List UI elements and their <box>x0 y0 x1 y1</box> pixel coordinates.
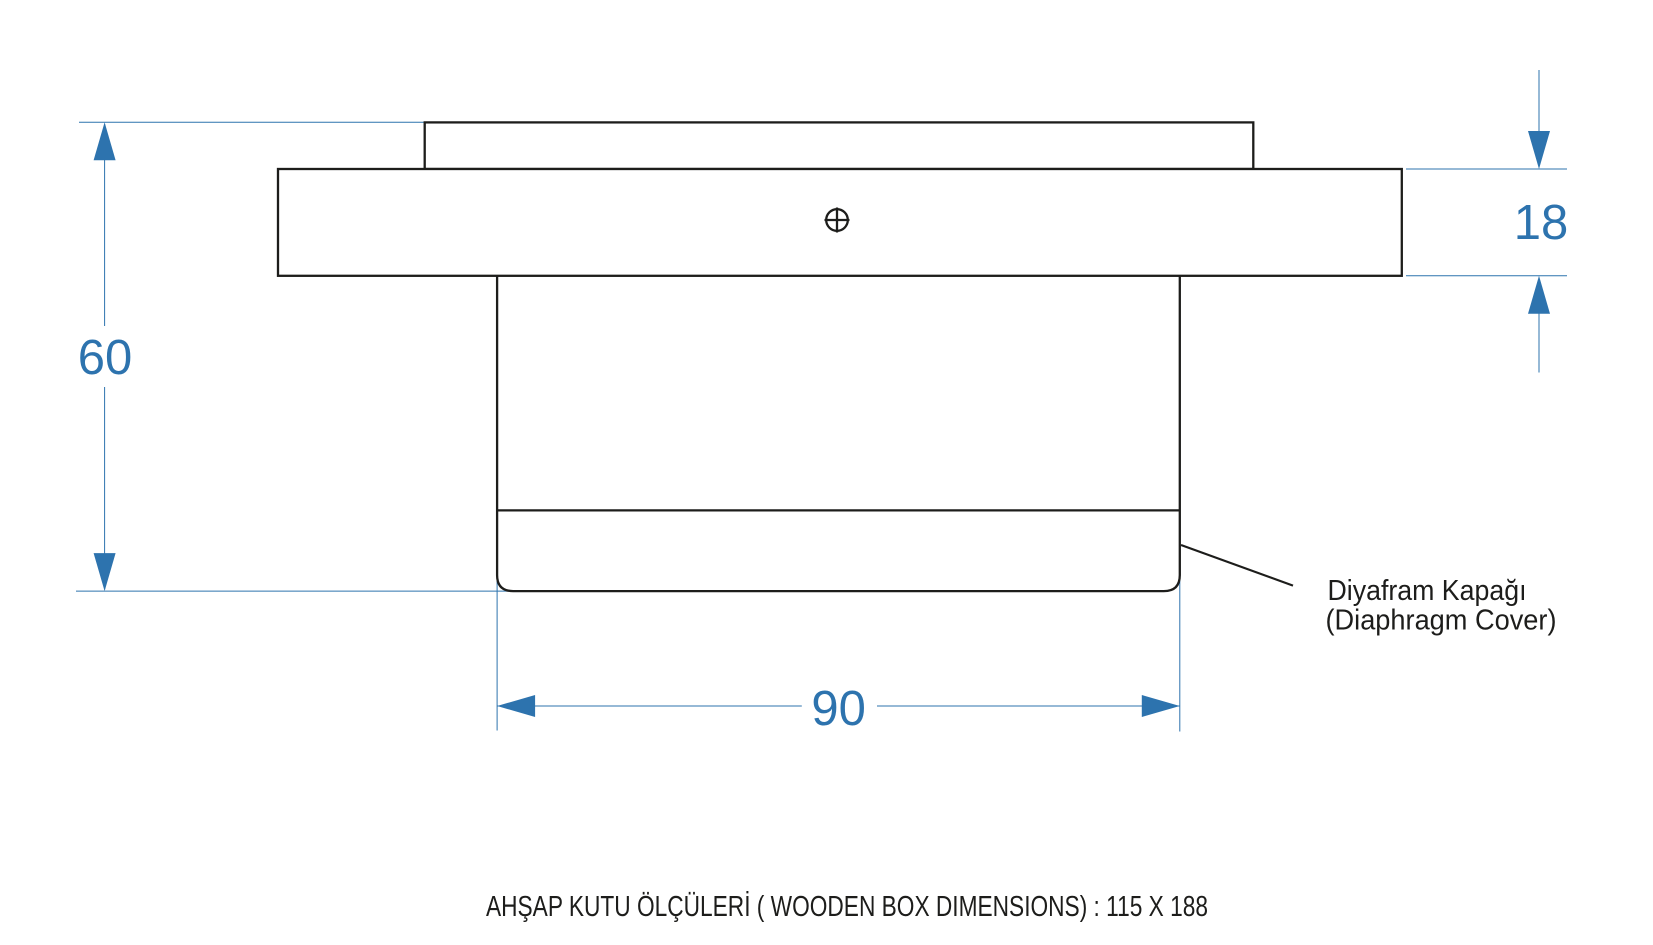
svg-text:Diyafram Kapağı: Diyafram Kapağı <box>1328 575 1527 607</box>
svg-text:18: 18 <box>1514 196 1569 250</box>
svg-text:AHŞAP KUTU ÖLÇÜLERİ ( WOODEN B: AHŞAP KUTU ÖLÇÜLERİ ( WOODEN BOX DIMENSI… <box>486 891 1208 923</box>
svg-text:90: 90 <box>811 682 866 736</box>
svg-text:(Diaphragm Cover): (Diaphragm Cover) <box>1326 605 1557 637</box>
svg-text:60: 60 <box>78 331 133 385</box>
